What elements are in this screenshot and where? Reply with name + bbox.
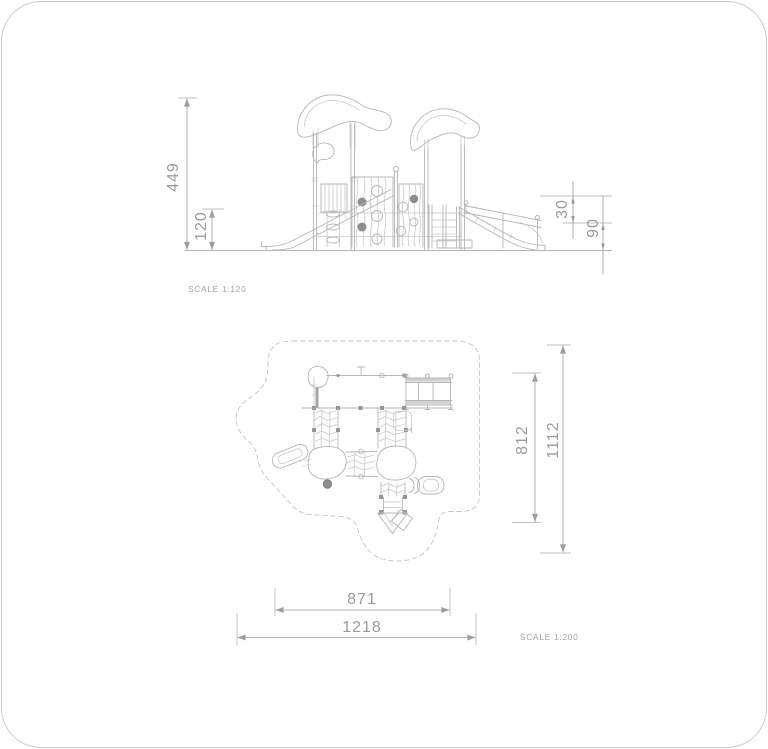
elevation-left-canopy (298, 95, 392, 148)
technical-drawing: 449 120 30 90 SCALE 1:120 (0, 0, 768, 749)
dim-label-platform-height: 120 (193, 211, 210, 241)
elevation-climb-panel-b (396, 184, 423, 247)
dim-label-guardrail-offset: 30 (554, 199, 571, 219)
plan-dimensions-horizontal: 871 1218 (237, 588, 476, 645)
elevation-pennant (313, 143, 334, 163)
plan-left-platform (308, 446, 346, 479)
plan-safety-zone-boundary (236, 341, 480, 561)
elevation-view: 449 120 30 90 SCALE 1:120 (165, 95, 612, 294)
elevation-right-canopy (411, 109, 480, 155)
plan-top-rail (312, 367, 407, 407)
dim-label-safety-zone-depth: 1112 (545, 421, 562, 458)
dim-label-equipment-depth: 812 (514, 425, 531, 455)
elevation-step-treads (327, 210, 340, 247)
dim-label-total-height: 449 (165, 162, 182, 192)
plan-bottom-column (378, 482, 413, 534)
plan-shield-panel (308, 366, 328, 407)
drawing-sheet: 449 120 30 90 SCALE 1:120 (0, 0, 768, 749)
plan-scale-label: SCALE 1:200 (520, 632, 578, 642)
elevation-left-tower-posts (312, 124, 356, 250)
plan-left-climb-column (312, 408, 340, 448)
plan-monkey-bars (404, 374, 454, 410)
plan-right-slide (409, 477, 444, 495)
plan-dimensions-vertical: 812 1112 (512, 345, 571, 553)
plan-anchor-dot (323, 480, 332, 489)
dim-label-slide-exit-height: 90 (585, 218, 602, 238)
elevation-left-slide (262, 190, 395, 251)
elevation-left-barrier-panel (321, 184, 347, 212)
elevation-scale-label: SCALE 1:120 (188, 284, 246, 294)
plan-right-climb-column (376, 408, 412, 448)
plan-left-slide (270, 442, 311, 470)
elevation-right-railing (464, 201, 543, 249)
dim-label-equipment-width: 871 (347, 591, 377, 608)
dim-label-safety-zone-width: 1218 (342, 619, 382, 636)
plan-view: 812 1112 871 1218 SCALE 1:200 (236, 341, 578, 645)
plan-middle-net (346, 449, 378, 479)
plan-right-platform (377, 446, 416, 480)
